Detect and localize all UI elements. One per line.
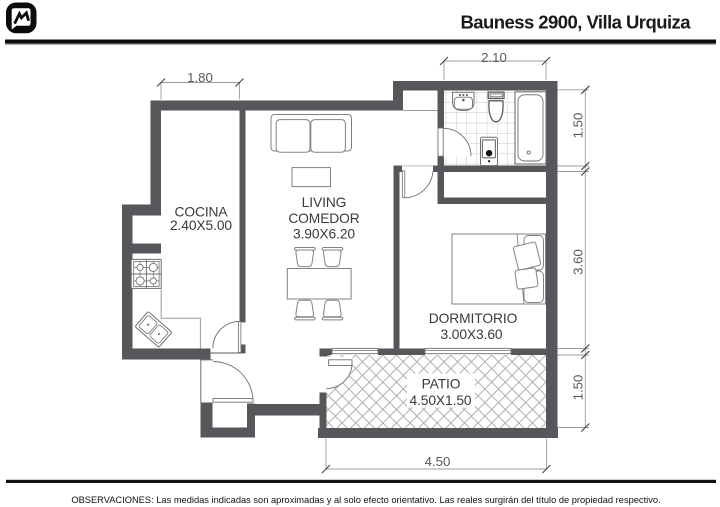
svg-text:4.50: 4.50 <box>425 454 451 469</box>
svg-text:COMEDOR: COMEDOR <box>288 211 359 226</box>
svg-text:1.50: 1.50 <box>571 375 586 401</box>
svg-text:2.40X5.00: 2.40X5.00 <box>170 218 232 233</box>
svg-text:3.00X3.60: 3.00X3.60 <box>440 327 502 342</box>
svg-text:PATIO: PATIO <box>422 377 461 392</box>
svg-text:DORMITORIO: DORMITORIO <box>429 311 518 326</box>
svg-text:OBSERVACIONES: Las medidas ind: OBSERVACIONES: Las medidas indicadas son… <box>71 495 660 505</box>
svg-text:1.50: 1.50 <box>571 113 586 139</box>
svg-text:4.50X1.50: 4.50X1.50 <box>409 393 471 408</box>
svg-text:LIVING: LIVING <box>302 195 347 210</box>
svg-text:Bauness 2900, Villa Urquiza: Bauness 2900, Villa Urquiza <box>460 12 691 33</box>
svg-text:2.10: 2.10 <box>481 50 507 65</box>
svg-text:3.60: 3.60 <box>571 249 586 275</box>
svg-text:1.80: 1.80 <box>187 70 213 85</box>
svg-text:3.90X6.20: 3.90X6.20 <box>293 227 355 242</box>
